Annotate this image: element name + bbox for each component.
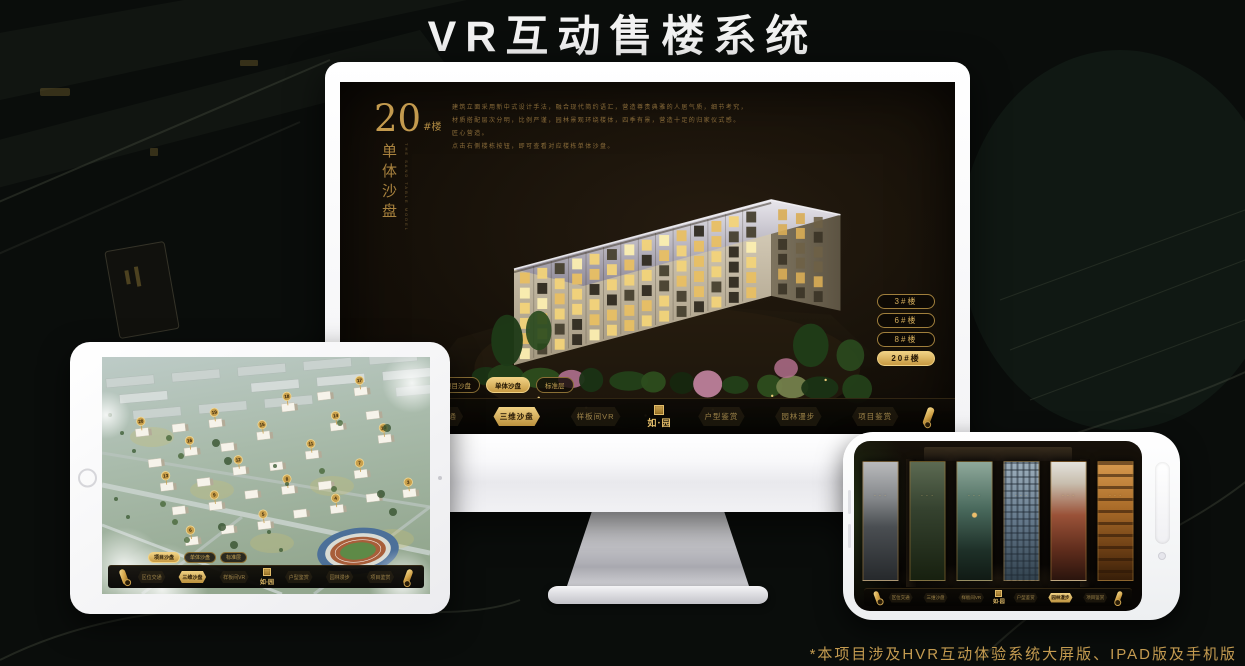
scene-card-courtyard-gray[interactable] bbox=[863, 461, 899, 581]
floor-button[interactable]: 8#楼 bbox=[877, 332, 935, 347]
floor-button-group: 3#楼6#楼8#楼20#楼 bbox=[877, 294, 935, 366]
scene-card-autumn-red[interactable] bbox=[1051, 461, 1087, 581]
scroll-handle-icon[interactable] bbox=[403, 568, 414, 585]
nav-item[interactable]: 园林漫步 bbox=[1046, 593, 1074, 603]
nav-item[interactable]: 项目鉴赏 bbox=[1081, 593, 1109, 603]
scene-card-pavilion-night[interactable] bbox=[957, 461, 993, 581]
nav-item[interactable]: 区位交通 bbox=[136, 571, 168, 583]
floor-button[interactable]: 6#楼 bbox=[877, 313, 935, 328]
brand-logo: 如·园 bbox=[260, 568, 274, 586]
side-button bbox=[848, 524, 851, 548]
nav-item[interactable]: 三维沙盘 bbox=[176, 571, 208, 583]
monitor-stand-base bbox=[548, 586, 768, 604]
gate-beam-decor bbox=[924, 447, 1072, 461]
scroll-handle-icon[interactable] bbox=[118, 568, 129, 585]
camera-icon bbox=[438, 476, 442, 480]
nav-item[interactable]: 园林漫步 bbox=[324, 571, 356, 583]
tablet-device: 20191817161514131211109876543 项目沙盘单体沙盘标准… bbox=[70, 342, 450, 614]
floor-button[interactable]: 20#楼 bbox=[877, 351, 935, 366]
building-unit: #楼 bbox=[423, 118, 441, 133]
subtab[interactable]: 标准层 bbox=[220, 552, 247, 563]
brand-seal-icon bbox=[654, 405, 664, 415]
nav-item[interactable]: 项目鉴赏 bbox=[848, 407, 902, 426]
page-title: VR互动售楼系统 bbox=[0, 2, 1245, 64]
heading-vertical: 单体沙盘 bbox=[379, 143, 400, 253]
phone-device: 区位交通三维沙盘样板间VR如·园户型鉴赏园林漫步项目鉴赏 bbox=[843, 432, 1180, 620]
scene-card-interior-warm[interactable] bbox=[1098, 461, 1134, 581]
nav-item[interactable]: 三维沙盘 bbox=[490, 407, 544, 426]
scene-card-facade-blue[interactable] bbox=[1004, 461, 1040, 581]
nav-item[interactable]: 区位交通 bbox=[887, 593, 915, 603]
nav-item[interactable]: 户型鉴赏 bbox=[1012, 593, 1040, 603]
camera-icon bbox=[1158, 552, 1166, 560]
home-button[interactable] bbox=[78, 469, 97, 488]
phone-screen: 区位交通三维沙盘样板间VR如·园户型鉴赏园林漫步项目鉴赏 bbox=[854, 441, 1142, 611]
scroll-handle-icon[interactable] bbox=[1114, 591, 1123, 605]
nav-item[interactable]: 项目鉴赏 bbox=[364, 571, 396, 583]
brand-logo-text: 如·园 bbox=[260, 577, 274, 586]
building-number: 20 bbox=[374, 100, 421, 137]
tablet-screen: 20191817161514131211109876543 项目沙盘单体沙盘标准… bbox=[102, 357, 430, 594]
scroll-handle-icon[interactable] bbox=[873, 591, 882, 605]
side-button bbox=[848, 490, 851, 514]
description-line: 建筑立面采用新中式设计手法，融合现代简约语汇，营造尊贵典雅的人居气质，细节考究， bbox=[452, 102, 772, 115]
nav-item[interactable]: 样板间VR bbox=[567, 407, 625, 426]
heading-subtitle-en: THE SAND TABLE MODEL bbox=[404, 143, 409, 233]
brand-seal-icon bbox=[263, 568, 271, 576]
description-line: 材质搭配层次分明，比例严谨，园林景观环绕楼体，四季有景，营造十足的归家仪式感。 bbox=[452, 115, 772, 128]
nav-item[interactable]: 样板间VR bbox=[217, 571, 251, 583]
tablet-subtabs: 项目沙盘单体沙盘标准层 bbox=[148, 552, 247, 563]
brand-logo-text: 如·园 bbox=[993, 598, 1005, 605]
subtab[interactable]: 标准层 bbox=[536, 377, 574, 393]
scroll-handle-icon[interactable] bbox=[922, 406, 935, 426]
nav-item[interactable]: 户型鉴赏 bbox=[283, 571, 315, 583]
brand-seal-icon bbox=[995, 590, 1002, 597]
nav-item[interactable]: 三维沙盘 bbox=[922, 593, 950, 603]
nav-item[interactable]: 园林漫步 bbox=[771, 407, 825, 426]
footnote: *本项目涉及HVR互动体验系统大屏版、IPAD版及手机版 bbox=[810, 643, 1237, 664]
nav-item[interactable]: 样板间VR bbox=[956, 593, 986, 603]
brand-logo: 如·园 bbox=[647, 405, 671, 429]
subtab[interactable]: 单体沙盘 bbox=[486, 377, 530, 393]
floor-button[interactable]: 3#楼 bbox=[877, 294, 935, 309]
phone-navbar: 区位交通三维沙盘样板间VR如·园户型鉴赏园林漫步项目鉴赏 bbox=[864, 588, 1132, 606]
scene-card-garden-dark[interactable] bbox=[910, 461, 946, 581]
notch bbox=[1155, 462, 1170, 544]
brand-logo-text: 如·园 bbox=[647, 416, 671, 429]
subtab[interactable]: 项目沙盘 bbox=[148, 552, 180, 563]
description-line: 匠心营造。 bbox=[452, 128, 772, 141]
scene-card-strip bbox=[863, 461, 1134, 581]
brand-logo: 如·园 bbox=[993, 590, 1005, 605]
monitor-subtabs: 项目沙盘单体沙盘标准层 bbox=[436, 377, 574, 393]
nav-item[interactable]: 户型鉴赏 bbox=[694, 407, 748, 426]
poster-canvas: VR互动售楼系统 20 #楼 单体沙盘 THE SAND TABLE MODEL… bbox=[0, 0, 1245, 666]
subtab[interactable]: 单体沙盘 bbox=[184, 552, 216, 563]
tablet-navbar: 区位交通三维沙盘样板间VR如·园户型鉴赏园林漫步项目鉴赏 bbox=[108, 565, 424, 588]
